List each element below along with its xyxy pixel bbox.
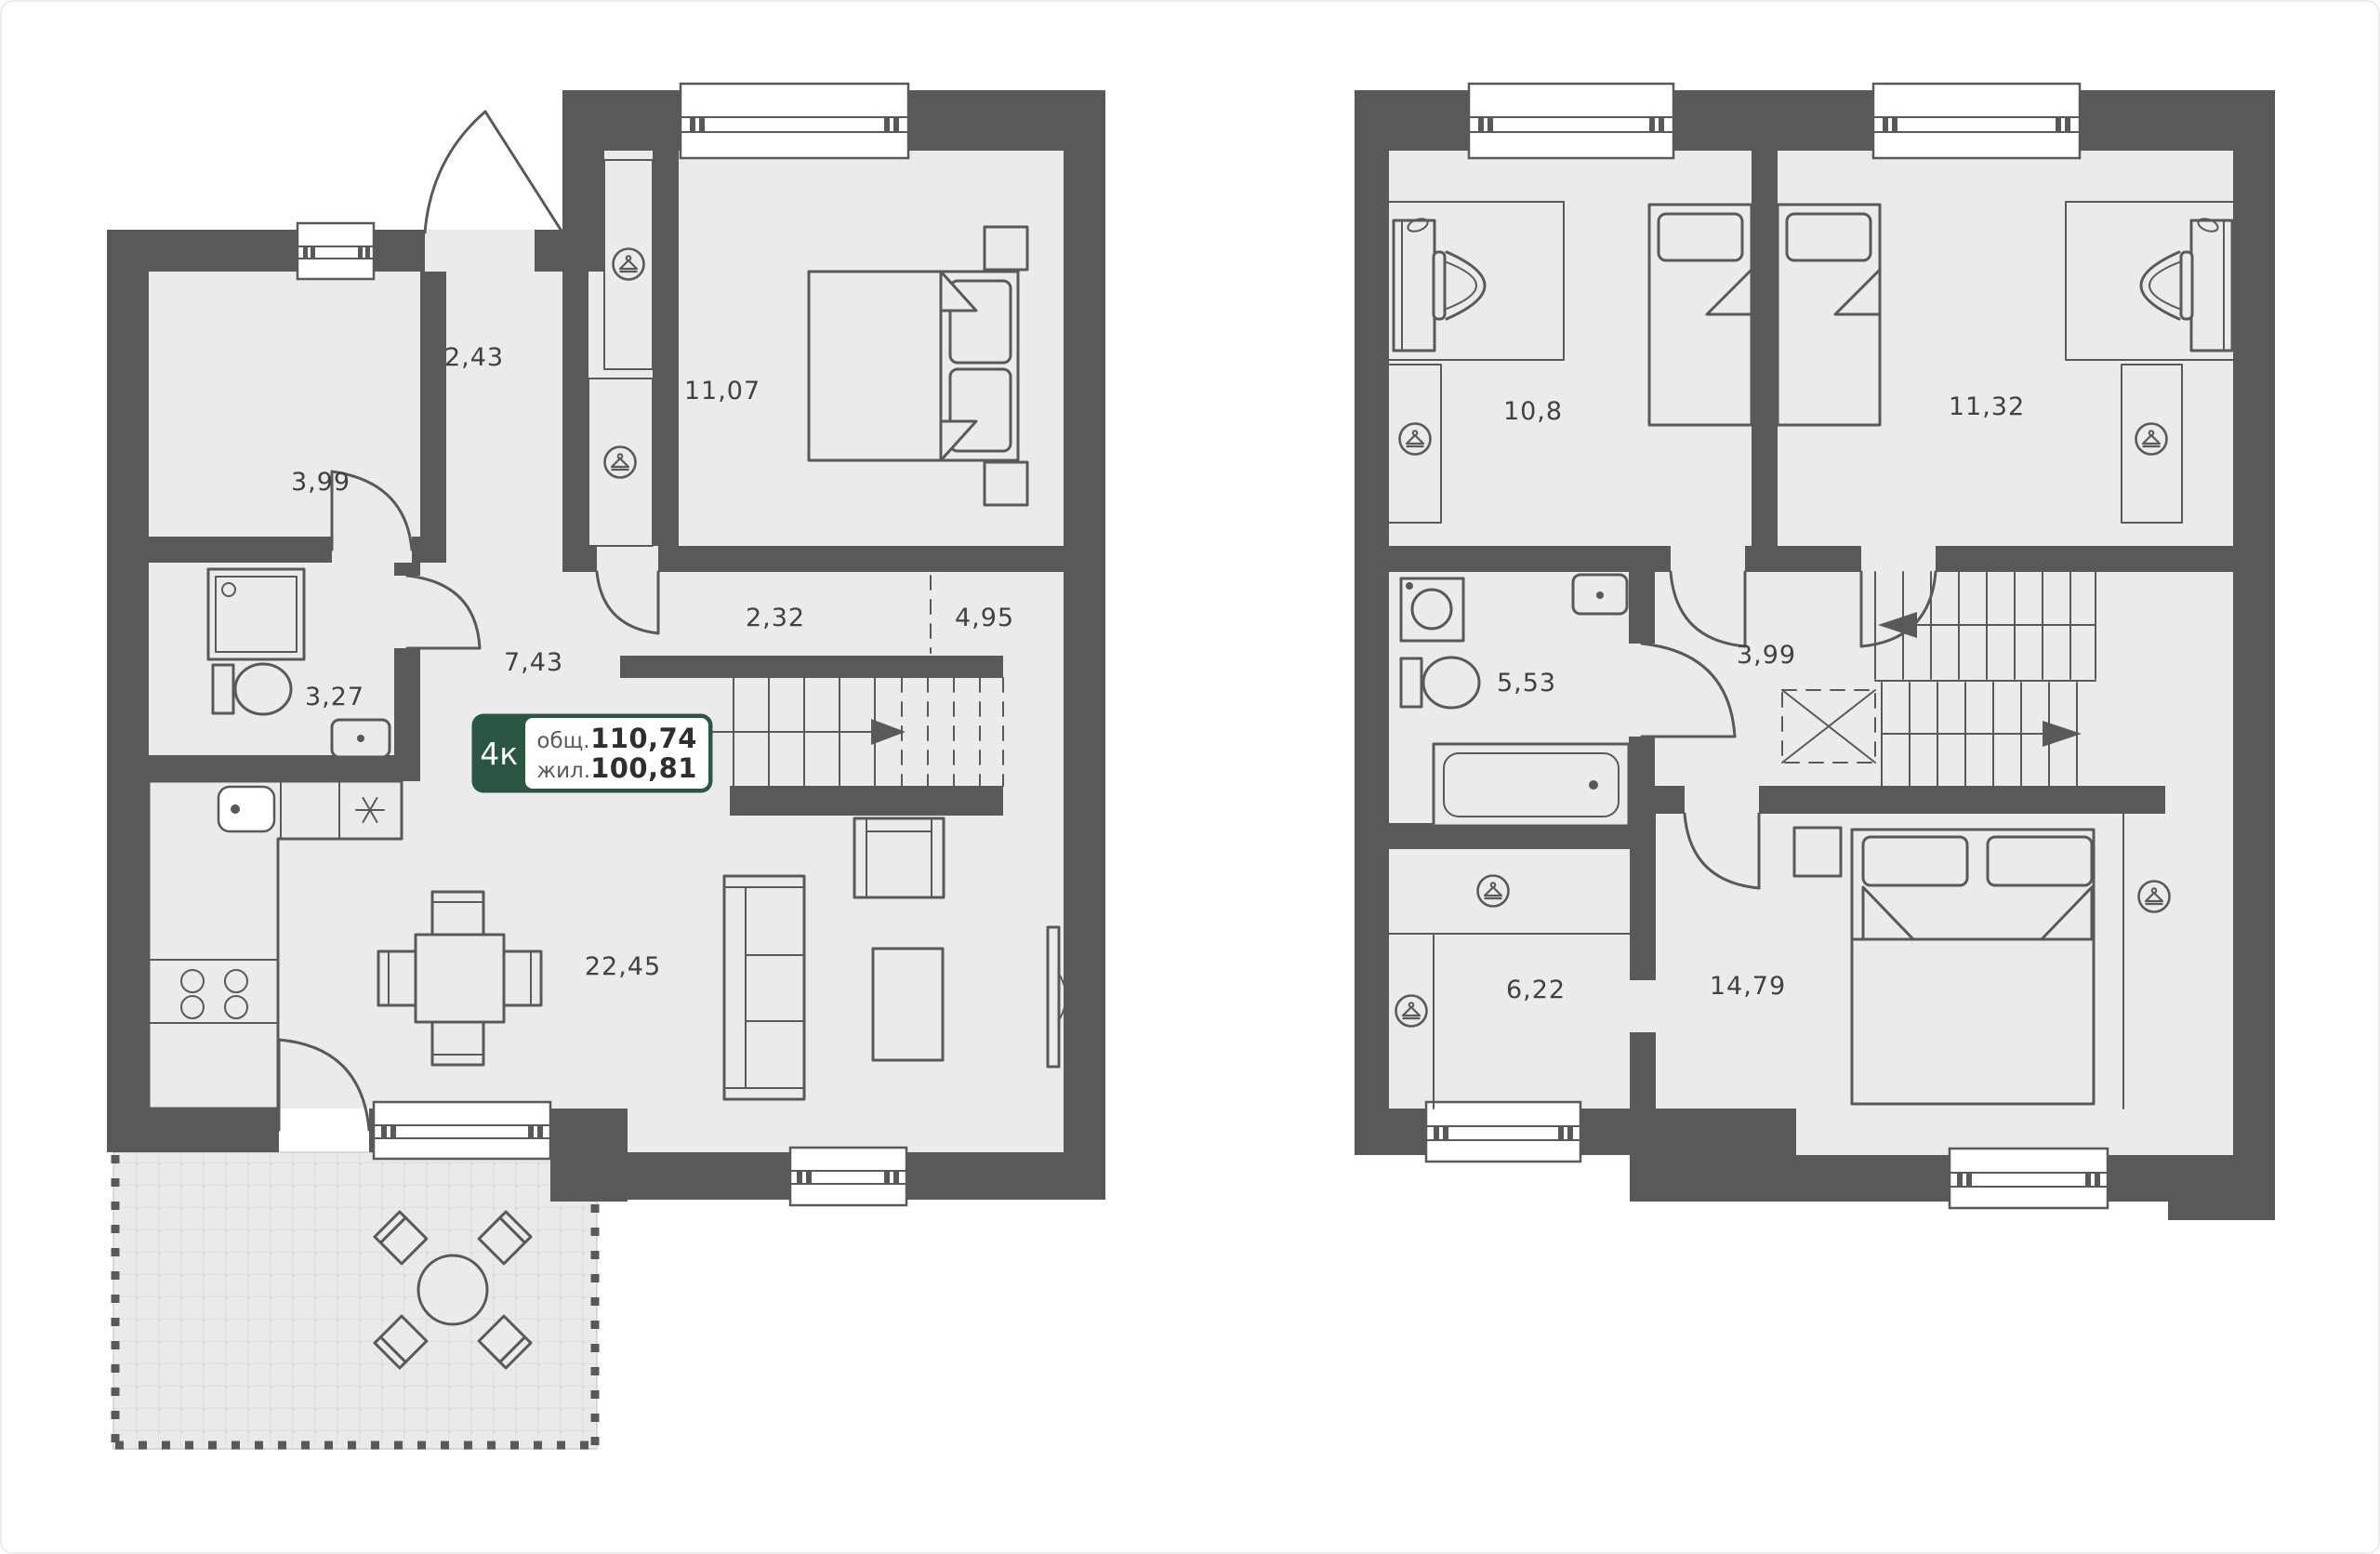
coffee-table xyxy=(873,949,943,1060)
room-area-label: 3,99 xyxy=(291,468,350,497)
room-area-label: 4,95 xyxy=(955,604,1014,632)
armchair xyxy=(854,818,944,897)
room-area-label: 14,79 xyxy=(1710,972,1786,1001)
desk xyxy=(2191,220,2232,351)
window xyxy=(1950,1149,2108,1208)
chair xyxy=(432,892,483,935)
room-area-label: 2,43 xyxy=(444,343,504,372)
floor-plans-figure: 3,99 2,43 11,07 3,27 7,43 2,32 4,95 22,4… xyxy=(2,2,2380,1554)
washing-machine xyxy=(1401,578,1463,641)
chair xyxy=(504,951,541,1005)
window xyxy=(681,84,908,158)
room-area-label: 11,32 xyxy=(1949,392,2025,421)
toilet xyxy=(213,664,291,714)
room-area-label: 7,43 xyxy=(504,648,563,677)
window xyxy=(790,1148,906,1205)
bathtub xyxy=(1434,744,1629,826)
shower xyxy=(208,569,304,659)
total-area-label: общ. xyxy=(536,730,589,752)
floor-plan-page: 3,99 2,43 11,07 3,27 7,43 2,32 4,95 22,4… xyxy=(0,0,2380,1554)
room-area-label: 10,8 xyxy=(1503,397,1563,426)
kitchen-sink xyxy=(218,787,274,831)
terrace xyxy=(113,1152,597,1449)
window xyxy=(1469,84,1673,158)
living-area-value: 100,81 xyxy=(590,754,697,782)
total-area-value: 110,74 xyxy=(590,724,697,752)
window xyxy=(1426,1102,1580,1162)
nightstand xyxy=(985,227,1027,270)
chair xyxy=(378,951,416,1005)
sofa xyxy=(724,876,804,1099)
washbasin xyxy=(332,720,390,757)
toilet xyxy=(1401,657,1479,708)
second-floor-plan: 10,8 11,32 5,53 3,99 6,22 14,79 xyxy=(1355,84,2275,1220)
room-area-label: 6,22 xyxy=(1506,976,1566,1004)
room-area-label: 3,99 xyxy=(1737,641,1796,670)
room-area-label: 2,32 xyxy=(746,604,805,632)
apartment-badge: 4к общ. 110,74 жил. 100,81 xyxy=(474,716,710,790)
room-area-label: 22,45 xyxy=(585,952,661,981)
living-area-label: жил. xyxy=(536,760,590,782)
window xyxy=(297,223,374,279)
apartment-areas-panel: общ. 110,74 жил. 100,81 xyxy=(525,718,708,789)
desk xyxy=(1394,220,1435,351)
apartment-type-label: 4к xyxy=(474,716,523,790)
entry-door xyxy=(425,112,562,232)
room-area-label: 11,07 xyxy=(684,377,760,405)
window xyxy=(1873,84,2080,158)
single-bed xyxy=(1778,205,1880,425)
room-area-label: 5,53 xyxy=(1497,669,1556,697)
window xyxy=(374,1102,550,1159)
washbasin xyxy=(1573,575,1627,614)
chair xyxy=(432,1022,483,1065)
single-bed xyxy=(1649,205,1752,425)
room-area-label: 3,27 xyxy=(305,683,364,711)
nightstand xyxy=(985,462,1027,505)
nightstand xyxy=(1794,828,1841,876)
